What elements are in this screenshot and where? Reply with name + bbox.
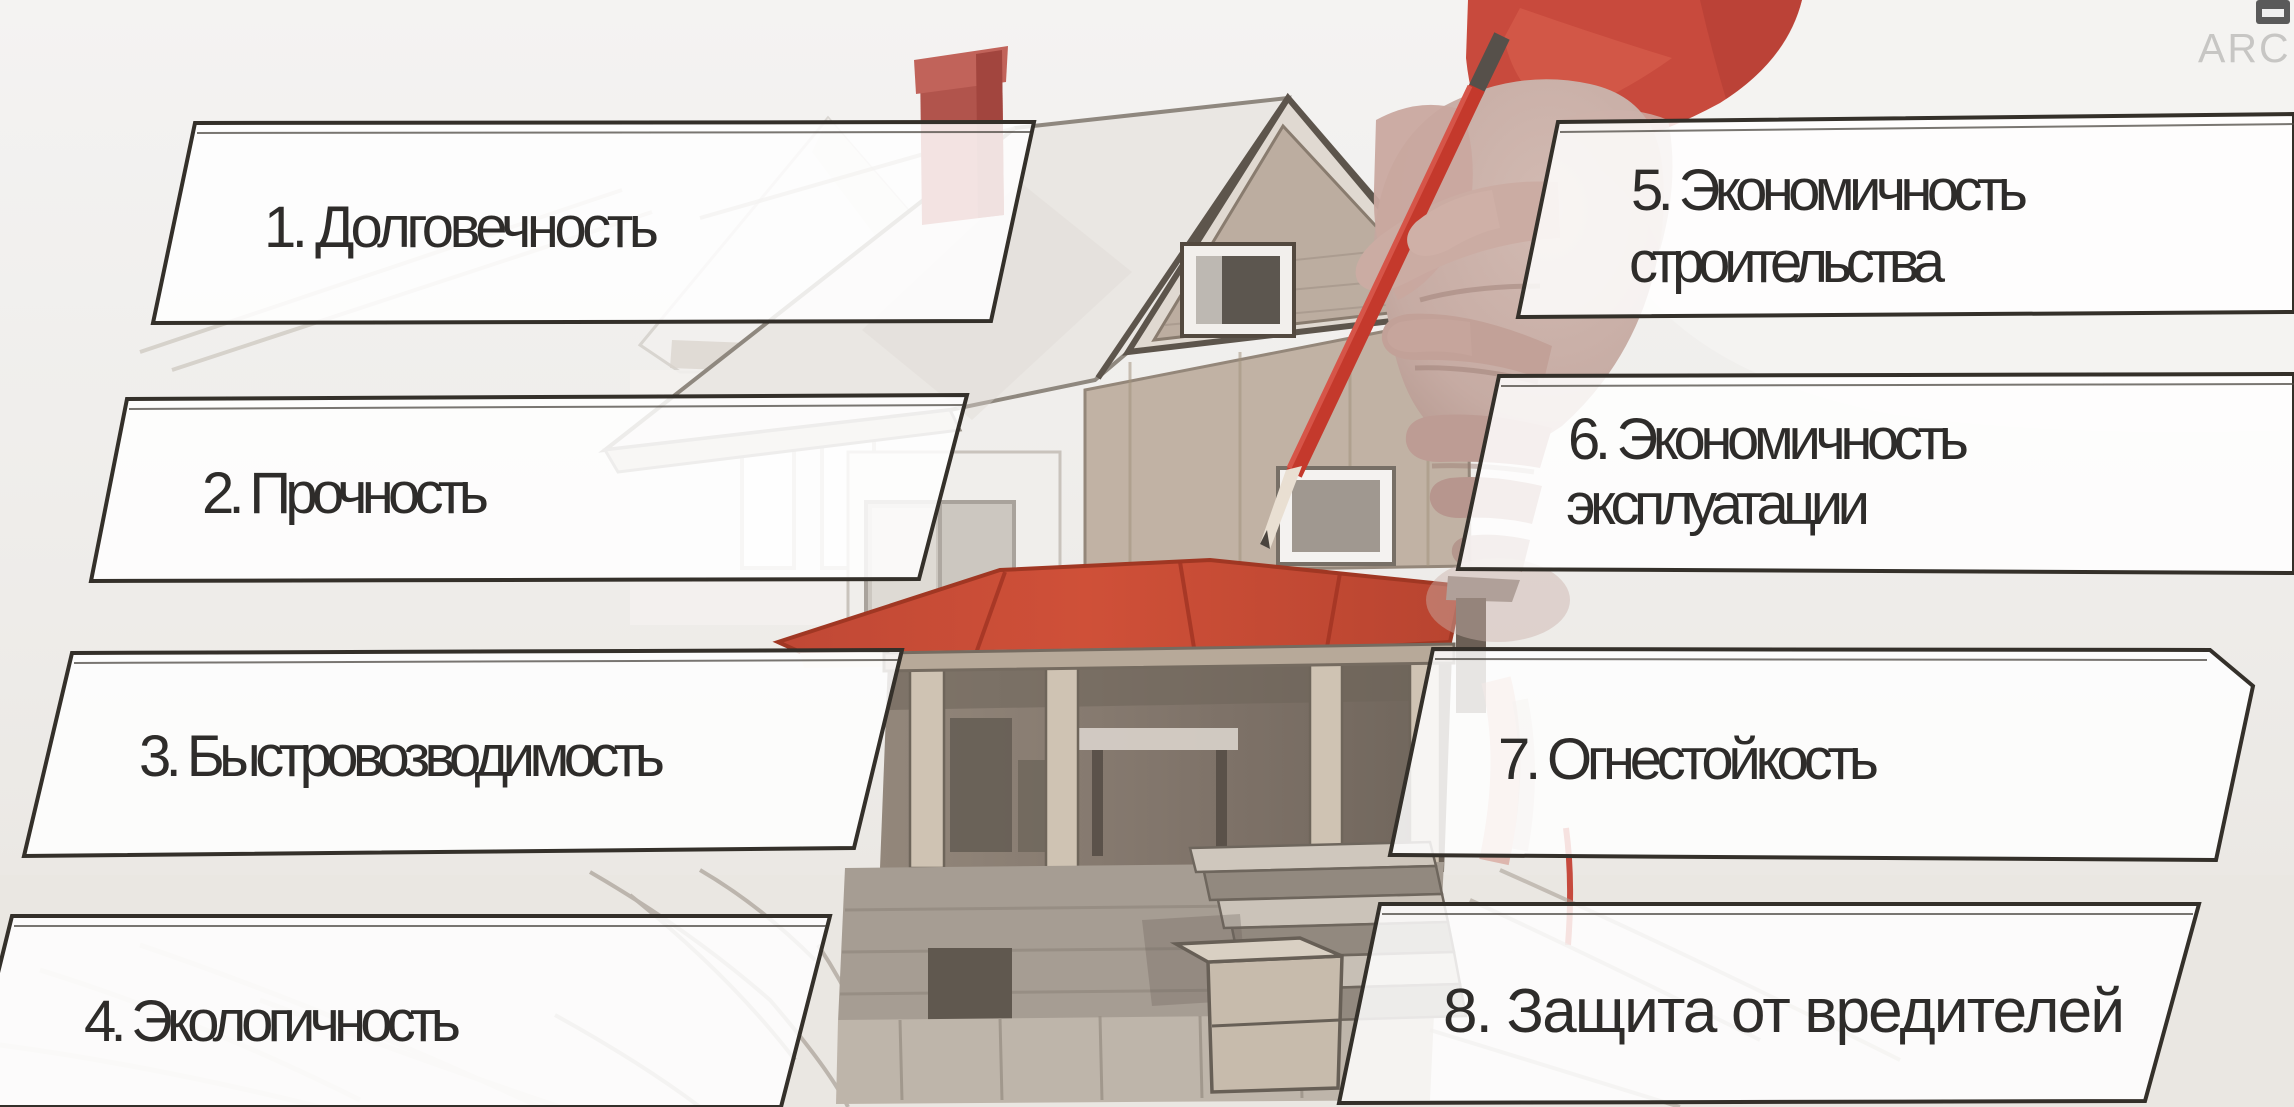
- svg-text:эксплуатации: эксплуатации: [1566, 472, 1870, 537]
- svg-text:ARC: ARC: [2198, 25, 2291, 71]
- svg-text:2. Прочность: 2. Прочность: [202, 461, 489, 526]
- svg-text:5. Экономичность: 5. Экономичность: [1631, 158, 2028, 223]
- svg-text:4. Экологичность: 4. Экологичность: [84, 989, 461, 1054]
- svg-text:строительства: строительства: [1629, 230, 1946, 295]
- svg-text:6. Экономичность: 6. Экономичность: [1568, 407, 1969, 472]
- svg-text:3. Быстровозводимость: 3. Быстровозводимость: [139, 724, 665, 789]
- svg-text:1. Долговечность: 1. Долговечность: [264, 195, 659, 260]
- svg-text:7. Огнестойкость: 7. Огнестойкость: [1498, 727, 1879, 792]
- svg-text:8. Защита от вредителей: 8. Защита от вредителей: [1443, 977, 2125, 1046]
